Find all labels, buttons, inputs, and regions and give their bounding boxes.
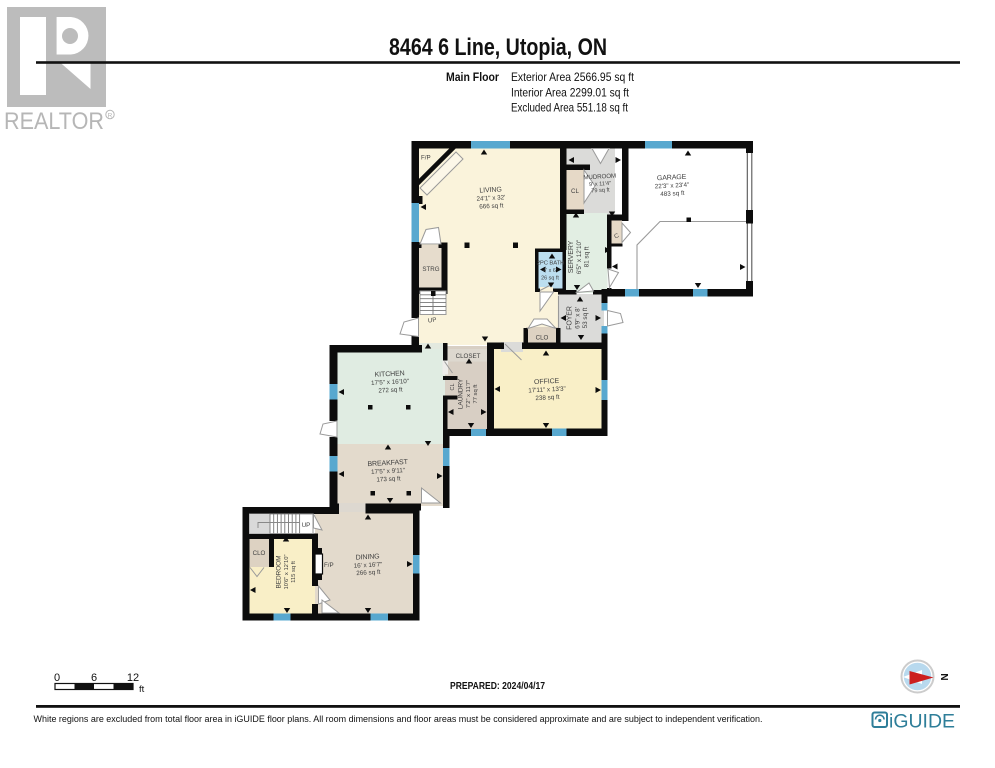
svg-text:UP: UP: [302, 522, 311, 529]
svg-text:REALTOR: REALTOR: [4, 108, 104, 135]
svg-text:F/P: F/P: [324, 562, 334, 569]
svg-text:483 sq ft: 483 sq ft: [660, 190, 685, 198]
svg-text:CL: CL: [450, 383, 456, 390]
svg-text:CLOSET: CLOSET: [456, 353, 481, 360]
svg-text:173 sq ft: 173 sq ft: [376, 475, 401, 483]
svg-text:N: N: [938, 673, 949, 680]
svg-text:12: 12: [127, 672, 139, 684]
svg-text:4' x 6': 4' x 6': [543, 268, 557, 274]
svg-text:White regions are excluded fro: White regions are excluded from total fl…: [34, 714, 763, 724]
svg-text:LAUNDRY: LAUNDRY: [458, 378, 465, 409]
svg-text:666 sq ft: 666 sq ft: [479, 202, 504, 210]
svg-text:F/P: F/P: [421, 155, 431, 162]
svg-text:238 sq ft: 238 sq ft: [535, 394, 560, 402]
svg-text:Exterior Area 2566.95 sq ft: Exterior Area 2566.95 sq ft: [511, 70, 635, 84]
svg-text:79 sq ft: 79 sq ft: [591, 187, 610, 194]
svg-text:6: 6: [91, 672, 97, 684]
svg-text:CLO: CLO: [253, 550, 266, 557]
svg-text:7'2" x 11'7": 7'2" x 11'7": [466, 380, 472, 408]
svg-text:R: R: [108, 113, 113, 120]
svg-text:SERVERY: SERVERY: [568, 240, 575, 273]
svg-text:CLO: CLO: [536, 335, 549, 342]
svg-text:STRG: STRG: [422, 266, 439, 273]
svg-text:8464 6 Line, Utopia, ON: 8464 6 Line, Utopia, ON: [389, 34, 607, 61]
svg-text:DINING: DINING: [355, 553, 379, 561]
svg-text:6'5" x 12'10": 6'5" x 12'10": [576, 240, 583, 275]
svg-text:LIVING: LIVING: [479, 186, 502, 194]
svg-text:26 sq ft: 26 sq ft: [541, 276, 559, 282]
svg-text:2PC BATH: 2PC BATH: [537, 261, 565, 267]
svg-text:53 sq ft: 53 sq ft: [582, 307, 589, 328]
svg-text:ft: ft: [139, 684, 145, 695]
svg-text:77 sq ft: 77 sq ft: [473, 384, 479, 403]
svg-text:6'9" x 8': 6'9" x 8': [575, 307, 582, 329]
svg-text:FOYER: FOYER: [567, 306, 574, 330]
svg-text:CL: CL: [571, 188, 579, 195]
svg-text:81 sq ft: 81 sq ft: [584, 246, 591, 267]
svg-text:Excluded Area 551.18 sq ft: Excluded Area 551.18 sq ft: [511, 101, 629, 115]
svg-text:0: 0: [54, 672, 60, 684]
svg-text:UP: UP: [427, 316, 436, 324]
svg-text:Main Floor: Main Floor: [446, 70, 499, 84]
svg-text:OFFICE: OFFICE: [534, 378, 560, 386]
svg-text:272 sq ft: 272 sq ft: [378, 386, 403, 394]
svg-text:10'6" x 12'10": 10'6" x 12'10": [284, 554, 290, 589]
svg-text:iGUIDE: iGUIDE: [889, 712, 955, 733]
svg-text:115 sq ft: 115 sq ft: [291, 561, 297, 583]
svg-text:266 sq ft: 266 sq ft: [356, 569, 381, 577]
svg-text:Interior Area 2299.01 sq ft: Interior Area 2299.01 sq ft: [511, 86, 630, 100]
svg-text:BEDROOM: BEDROOM: [276, 556, 283, 589]
svg-text:PREPARED: 2024/04/17: PREPARED: 2024/04/17: [450, 681, 545, 692]
